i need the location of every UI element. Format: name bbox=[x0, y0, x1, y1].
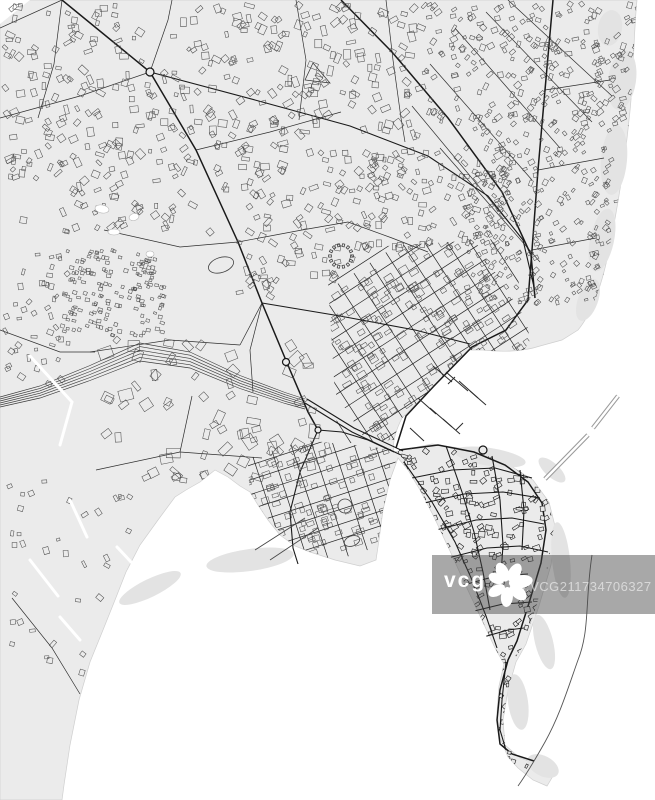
stock-map-image: vcg ID:VCG211734706327 bbox=[0, 0, 655, 800]
watermark-id-text: ID:VCG211734706327 bbox=[512, 579, 652, 594]
watermark-bar: vcg ID:VCG211734706327 bbox=[432, 555, 655, 614]
city-map bbox=[0, 0, 655, 800]
